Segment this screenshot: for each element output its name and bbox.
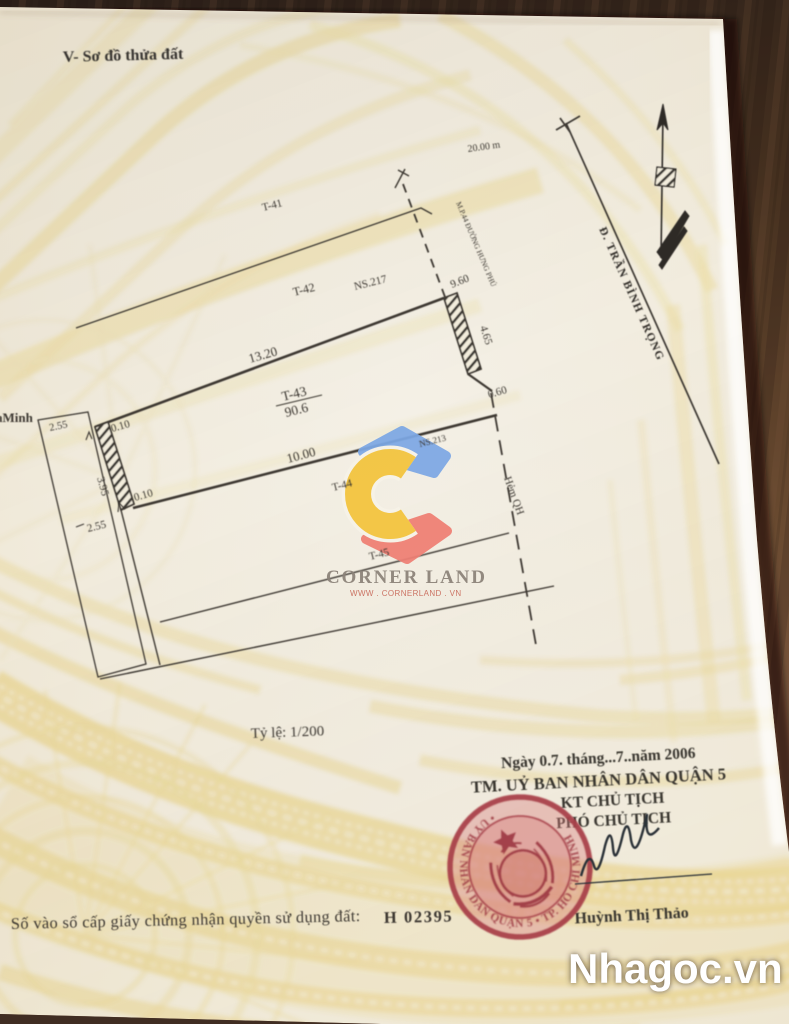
- svg-text:H 02395: H 02395: [384, 906, 454, 927]
- svg-text:Tỷ lệ: 1/200: Tỷ lệ: 1/200: [251, 723, 325, 742]
- svg-text:CORNER LAND: CORNER LAND: [326, 567, 487, 588]
- svg-text:WWW . CORNERLAND . VN: WWW . CORNERLAND . VN: [350, 589, 462, 598]
- svg-text:V- Sơ đồ thửa đất: V- Sơ đồ thửa đất: [63, 46, 184, 66]
- svg-text:aMinh: aMinh: [0, 410, 34, 425]
- svg-text:Nhagoc.vn: Nhagoc.vn: [568, 945, 783, 992]
